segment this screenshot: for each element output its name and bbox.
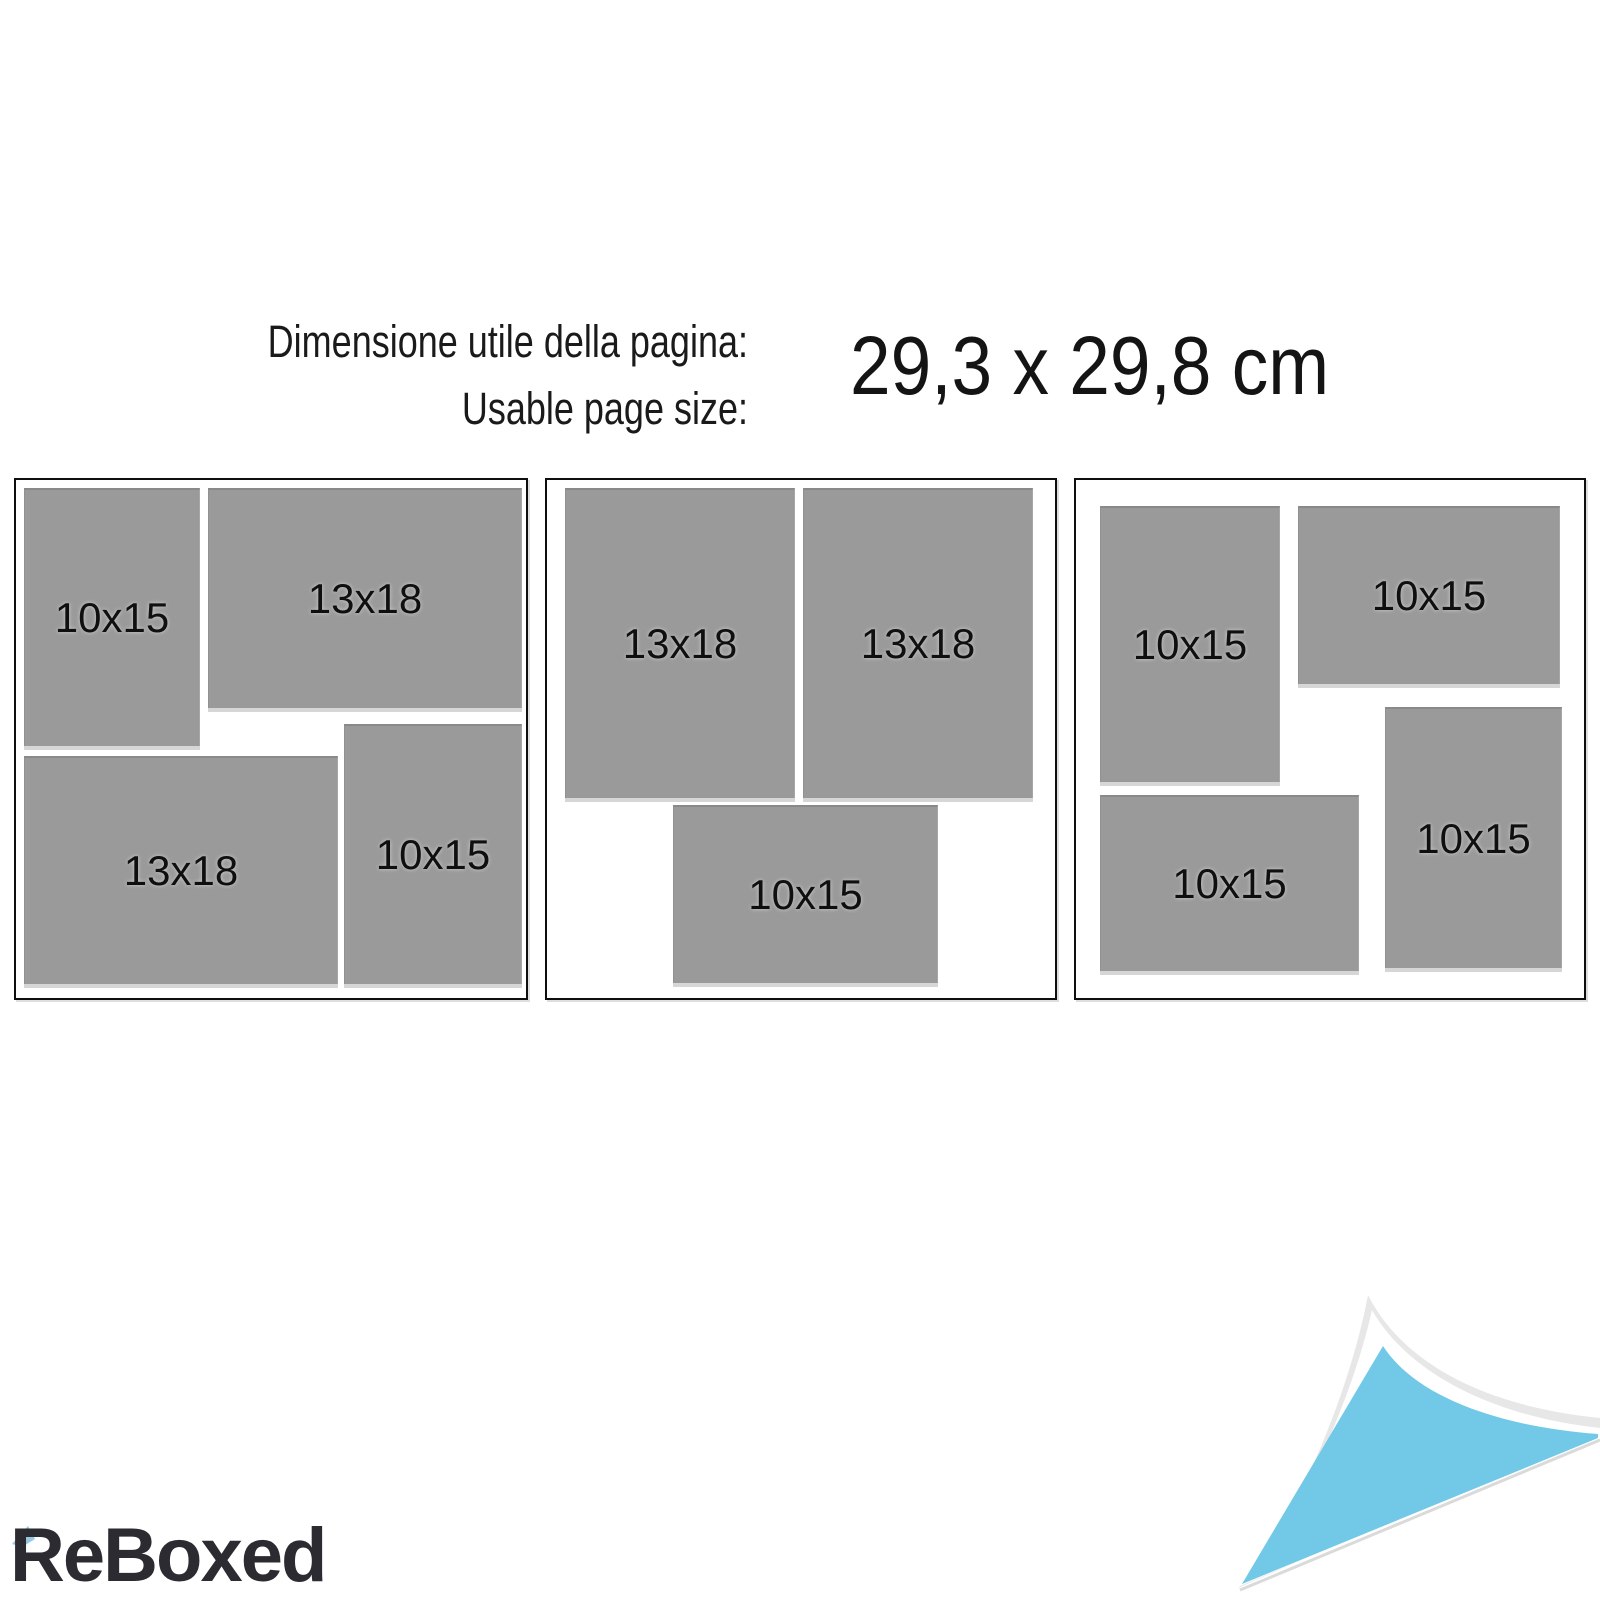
photo-slot-label: 13x18 — [861, 620, 975, 668]
photo-slot: 10x15 — [1100, 506, 1280, 782]
photo-slot-label: 13x18 — [124, 847, 238, 895]
photo-slot: 10x15 — [1100, 795, 1359, 971]
photo-slot-label: 13x18 — [623, 620, 737, 668]
photo-slot: 10x15 — [673, 805, 938, 983]
photo-slot-label: 10x15 — [1372, 572, 1486, 620]
photo-slot-label: 10x15 — [748, 871, 862, 919]
photo-slot-label: 13x18 — [308, 575, 422, 623]
layout-page-3: 10x15 10x15 10x15 10x15 — [1074, 478, 1586, 1000]
label-italian: Dimensione utile della pagina: — [150, 308, 748, 375]
photo-slot-label: 10x15 — [1172, 860, 1286, 908]
photo-slot: 13x18 — [24, 756, 338, 984]
photo-slot-label: 10x15 — [376, 831, 490, 879]
photo-slot-label: 10x15 — [55, 594, 169, 642]
brand-logo: ReBoxed — [10, 1512, 325, 1599]
label-english: Usable page size: — [150, 375, 748, 442]
page-size-value: 29,3 x 29,8 cm — [850, 318, 1329, 414]
layout-page-2: 13x18 13x18 10x15 — [545, 478, 1057, 1000]
photo-slot: 13x18 — [803, 488, 1033, 798]
page-curl-icon — [1150, 1270, 1600, 1600]
photo-slot: 13x18 — [208, 488, 522, 708]
photo-slot: 10x15 — [1298, 506, 1560, 684]
page-size-labels: Dimensione utile della pagina: Usable pa… — [150, 308, 748, 442]
layout-page-1: 10x15 13x18 13x18 10x15 — [14, 478, 528, 1000]
photo-slot: 10x15 — [344, 724, 522, 984]
photo-slot: 10x15 — [24, 488, 200, 746]
photo-slot: 10x15 — [1385, 707, 1562, 968]
photo-slot-label: 10x15 — [1133, 621, 1247, 669]
photo-slot: 13x18 — [565, 488, 795, 798]
product-info-image: Dimensione utile della pagina: Usable pa… — [0, 0, 1600, 1600]
photo-slot-label: 10x15 — [1416, 815, 1530, 863]
